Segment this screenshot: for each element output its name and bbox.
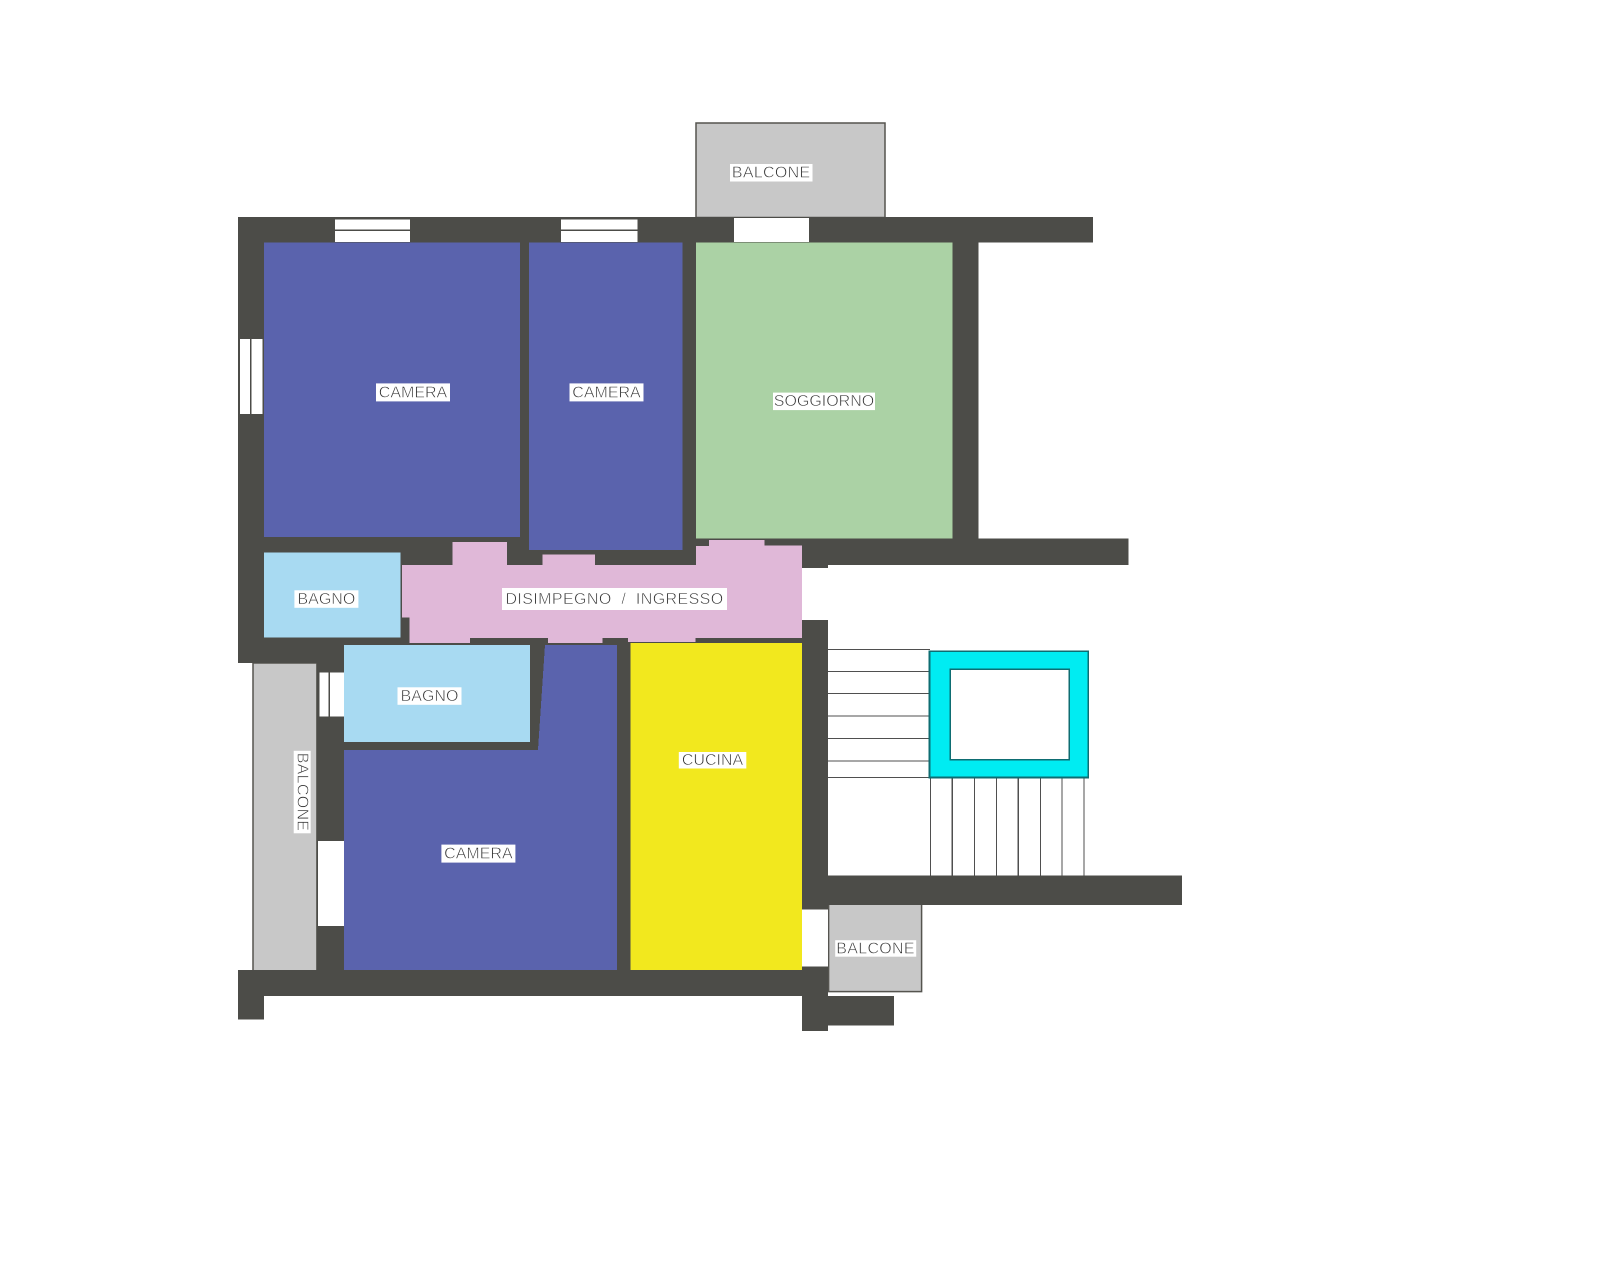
svg-text:BALCONE: BALCONE — [732, 165, 811, 182]
svg-text:SOGGIORNO: SOGGIORNO — [774, 393, 874, 410]
svg-text:CAMERA: CAMERA — [379, 384, 448, 401]
svg-text:BALCONE: BALCONE — [293, 753, 310, 832]
svg-text:CUCINA: CUCINA — [682, 752, 744, 769]
svg-text:BAGNO: BAGNO — [401, 688, 459, 705]
svg-text:BAGNO: BAGNO — [298, 591, 356, 608]
svg-text:CAMERA: CAMERA — [444, 845, 513, 862]
svg-text:CAMERA: CAMERA — [572, 384, 641, 401]
svg-text:BALCONE: BALCONE — [836, 940, 915, 957]
svg-text:DISIMPEGNO / INGRESSO: DISIMPEGNO / INGRESSO — [505, 591, 723, 608]
